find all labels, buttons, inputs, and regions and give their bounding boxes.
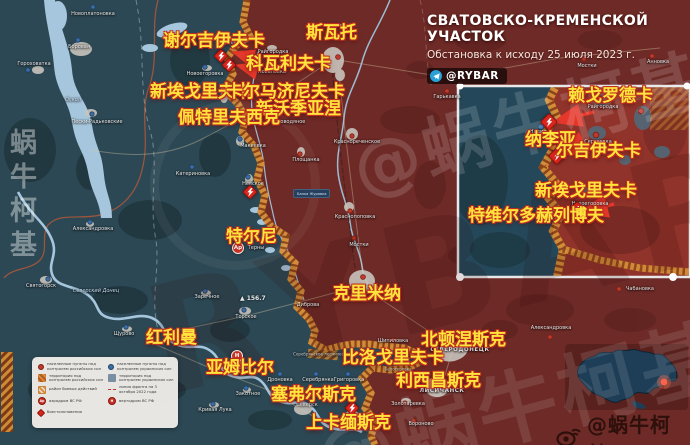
- legend: населенные пункты под контролем российск…: [32, 357, 178, 428]
- place-label-cn: 比洛戈里夫卡: [342, 350, 444, 367]
- place-label-cn: 谢尔吉伊夫卡: [163, 33, 265, 50]
- legend-item: боестолкновения: [38, 408, 104, 417]
- town-label: Александровка: [73, 226, 114, 232]
- town-label: Золотаревка: [391, 401, 425, 407]
- legend-item-label: боестолкновения: [47, 410, 82, 414]
- town-label: Григоровка: [334, 377, 364, 383]
- town-label: Боровая: [68, 44, 90, 50]
- legend-symbol-icon: [108, 389, 116, 390]
- legend-symbol-icon: Н: [108, 397, 116, 405]
- town-label: Северский Донец: [73, 288, 119, 294]
- map-title: СВАТОВСКО-КРЕМЕНСКОЙ УЧАСТОК: [427, 13, 690, 45]
- place-label-cn: 塞弗尔斯克: [271, 387, 356, 404]
- town-label: Краснопоповка: [335, 214, 376, 220]
- sector-location-dot: [661, 379, 668, 386]
- legend-item: Ар аэродром ВС РФ: [38, 397, 104, 406]
- legend-item: линия фронта на 3 октября 2022 года: [108, 385, 174, 394]
- legend-right-column: населенные пункты под контролем украинск…: [108, 362, 174, 425]
- legend-item-label: вертодром ВС РФ: [119, 399, 154, 403]
- town-label: Заречное: [195, 294, 220, 300]
- place-label-cn: 特维尔多赫列博夫: [468, 208, 604, 225]
- town-label: Гороховатка: [17, 61, 50, 67]
- town-label: Мостки: [349, 242, 368, 248]
- town-label: Закотное: [236, 391, 261, 397]
- channel-handle: @RYBAR: [446, 70, 499, 82]
- town-label: Серебрянка: [302, 377, 333, 383]
- gully-label: Балка Журавка: [293, 189, 330, 198]
- legend-symbol-icon: [108, 374, 116, 382]
- legend-symbol-icon: [38, 364, 44, 370]
- legend-item: населенные пункты под контролем украинск…: [108, 362, 174, 371]
- legend-item-label: населенные пункты под контролем украинск…: [117, 362, 174, 371]
- town-label: Оскол: [65, 97, 81, 103]
- town-label: Вороново: [408, 421, 433, 427]
- legend-symbol-icon: [108, 364, 114, 370]
- town-label: Площанка: [292, 157, 319, 163]
- town-label: Шипиловка: [378, 338, 408, 344]
- legend-symbol-icon: Ар: [38, 397, 46, 405]
- title-block: СВАТОВСКО-КРЕМЕНСКОЙ УЧАСТОК Обстановка …: [427, 13, 690, 84]
- town-label: Новоплатоновка: [71, 11, 115, 17]
- town-label: Краснореченское: [334, 139, 380, 145]
- edge-hatch-bar: [1, 352, 13, 432]
- legend-item: территория под контролем украинских сил: [108, 374, 174, 383]
- legend-item-label: территория под контролем украинских сил: [119, 374, 174, 383]
- place-label-cn: 红利曼: [146, 330, 197, 347]
- legend-symbol-icon: [37, 408, 45, 416]
- town-label: Святогорск: [26, 283, 56, 289]
- place-label-cn: 利西昌斯克: [396, 373, 481, 390]
- town-label: Новоегоровка: [187, 71, 224, 77]
- map-subtitle: Обстановка к исходу 25 июля 2023 г.: [427, 49, 690, 61]
- place-label-cn: 赖戈罗德卡: [568, 88, 653, 105]
- legend-symbol-icon: [38, 374, 46, 382]
- legend-item: территория под контролем российских сил: [38, 374, 104, 383]
- town-label: Торское: [235, 314, 256, 320]
- town-label: Гарькавка: [433, 94, 460, 100]
- legend-item-label: район боевых действий: [49, 387, 97, 391]
- legend-item: населенные пункты под контролем российск…: [38, 362, 104, 371]
- place-label-cn: 斯瓦托: [306, 25, 357, 42]
- legend-item-label: линия фронта на 3 октября 2022 года: [119, 385, 174, 394]
- weibo-icon: [556, 425, 582, 445]
- legend-item-label: населенные пункты под контролем российск…: [47, 362, 104, 371]
- place-label-cn: 新埃戈里夫卡: [535, 183, 637, 200]
- legend-item-label: аэродром ВС РФ: [49, 399, 82, 403]
- town-label: Невское: [242, 181, 264, 187]
- weibo-badge: @蜗牛柯基: [556, 409, 690, 445]
- town-label: Щурово: [114, 331, 135, 337]
- rybar-channel-badge: @RYBAR: [427, 68, 507, 84]
- place-label-cn: 克里米纳: [333, 286, 401, 303]
- town-label: Кривая Лука: [198, 407, 231, 413]
- legend-item: район боевых действий: [38, 385, 104, 394]
- place-label-cn: 北顿涅斯克: [421, 332, 506, 349]
- legend-item: Н вертодром ВС РФ: [108, 397, 174, 406]
- place-label-cn: 佩特里夫西克: [178, 110, 280, 127]
- town-label: Чабановка: [626, 286, 654, 292]
- town-label: Макеевка: [240, 143, 266, 149]
- height-point: ▲ 156.7: [240, 295, 266, 302]
- legend-symbol-icon: [38, 386, 46, 394]
- town-label: Александровка: [531, 325, 572, 331]
- legend-left-column: населенные пункты под контролем российск…: [38, 362, 104, 425]
- town-label: Диброва: [297, 302, 319, 308]
- telegram-icon: [430, 70, 442, 82]
- place-label-cn: 尔吉伊夫卡: [556, 143, 641, 160]
- legend-item-label: территория под контролем российских сил: [49, 374, 104, 383]
- place-label-cn: 亚姆比尔: [206, 360, 274, 377]
- overview-minimap: [565, 344, 688, 410]
- town-label: Катериновка: [176, 171, 210, 177]
- place-label-cn: 上卡缅斯克: [306, 415, 391, 432]
- town-label: Пески-Радьковские: [71, 119, 122, 125]
- place-label-cn: 特尔尼: [226, 229, 277, 246]
- war-map-screenshot: 蜗牛柯基 @蜗牛柯基 @蜗牛柯基 RYBAR НовоплатоновкаБор…: [0, 0, 690, 445]
- weibo-handle: @蜗牛柯基: [587, 409, 690, 445]
- place-label-cn: 科瓦利夫卡: [246, 56, 331, 73]
